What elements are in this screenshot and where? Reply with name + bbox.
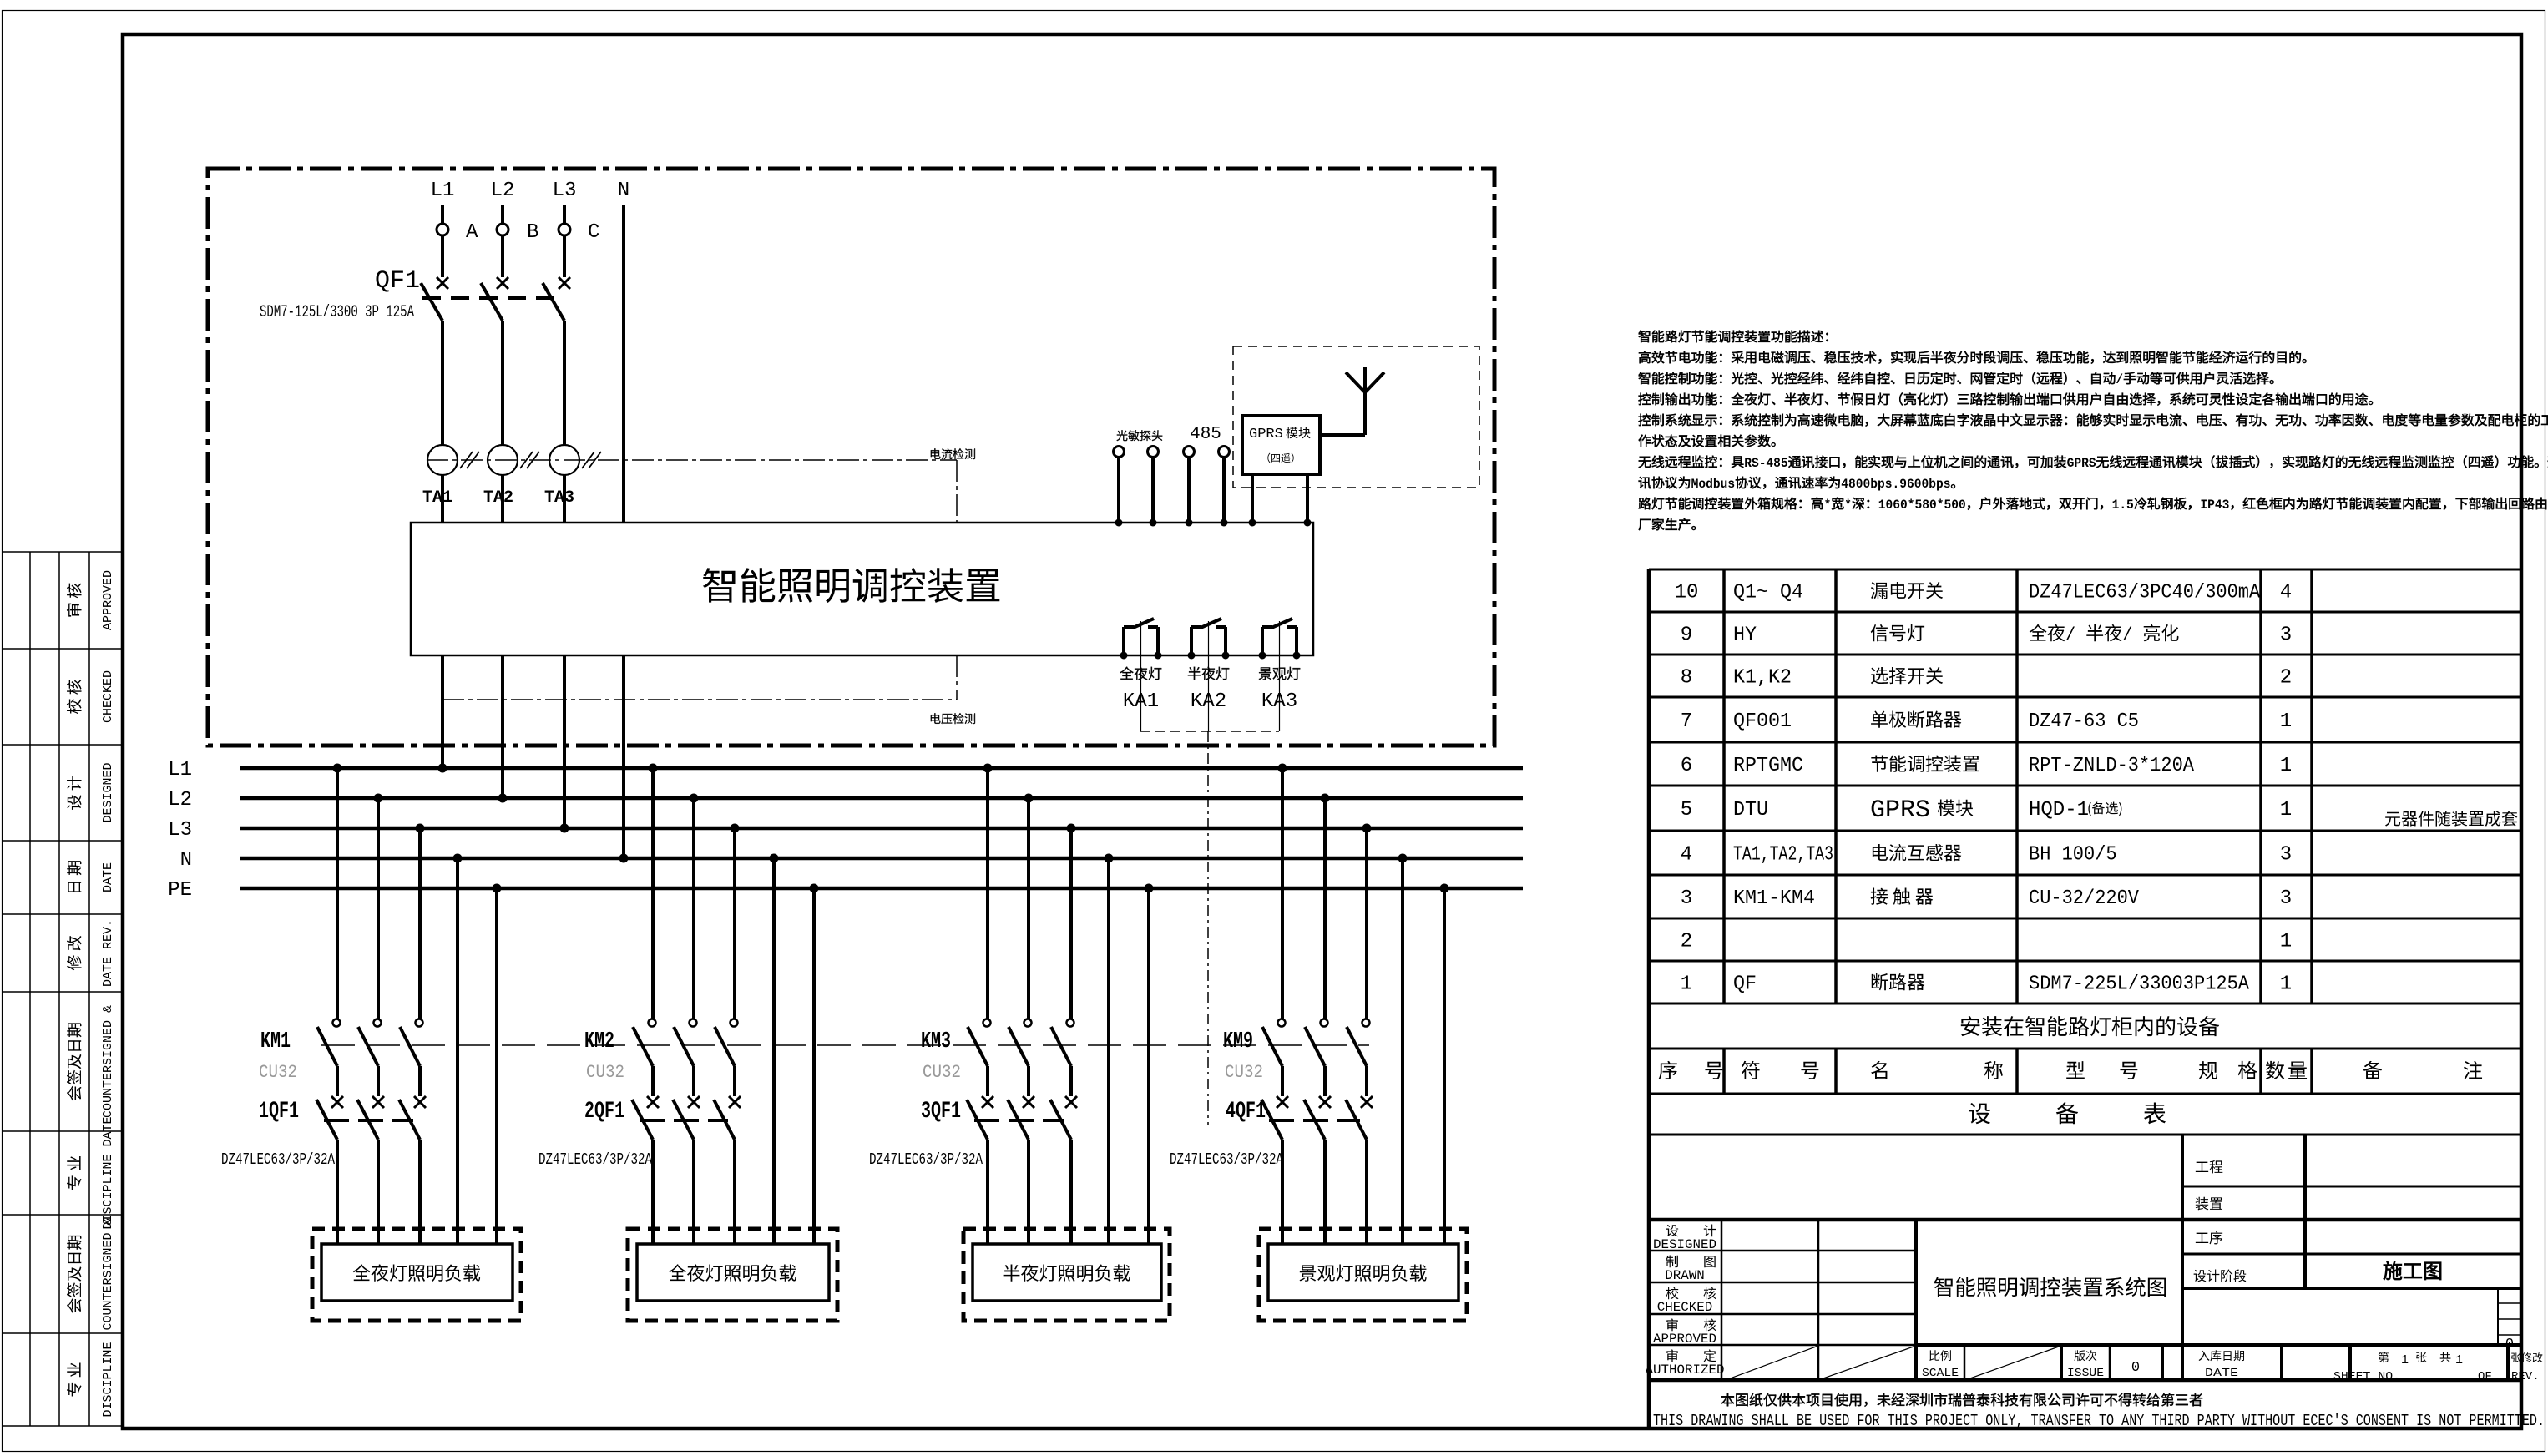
svg-text:1: 1 — [2280, 710, 2292, 733]
svg-text:1060*580*500: 1060*580*500 — [1878, 498, 1966, 513]
svg-text:7: 7 — [1681, 710, 1692, 733]
svg-text:2QF1: 2QF1 — [584, 1099, 624, 1125]
svg-text:4: 4 — [2280, 582, 2292, 604]
svg-text:L1: L1 — [168, 759, 192, 781]
svg-text:RPT-ZNLD-3*120A: RPT-ZNLD-3*120A — [2029, 755, 2195, 777]
svg-text:3: 3 — [2280, 624, 2292, 647]
svg-text:1.5: 1.5 — [2112, 498, 2134, 513]
svg-text:COUNTERSIGNED &: COUNTERSIGNED & — [101, 1217, 115, 1330]
svg-text:DATE: DATE — [2205, 1367, 2238, 1380]
svg-text:1: 1 — [2280, 755, 2292, 777]
svg-text:1: 1 — [2401, 1353, 2409, 1368]
svg-text:DZ47LEC63/3P/32A: DZ47LEC63/3P/32A — [1170, 1150, 1283, 1169]
svg-text:SHEET NO.: SHEET NO. — [2333, 1370, 2400, 1383]
svg-text:/: / — [2122, 625, 2142, 646]
svg-text:9: 9 — [1681, 624, 1692, 647]
svg-text:SDM7-125L/3300 3P 125A: SDM7-125L/3300 3P 125A — [260, 303, 414, 322]
svg-text:TA3: TA3 — [544, 488, 574, 508]
svg-text:KM9: KM9 — [1223, 1029, 1253, 1054]
svg-text:OF: OF — [2478, 1370, 2492, 1383]
svg-text:KA3: KA3 — [1261, 690, 1297, 713]
svg-text:QF: QF — [1733, 973, 1757, 996]
svg-text:3: 3 — [2280, 844, 2292, 867]
svg-text:THIS DRAWING SHALL BE USED FOR: THIS DRAWING SHALL BE USED FOR THIS PROJ… — [1653, 1412, 2545, 1430]
svg-text:N: N — [618, 179, 629, 202]
svg-text:10: 10 — [1675, 582, 1699, 604]
svg-text:HY: HY — [1733, 624, 1757, 647]
svg-text:8: 8 — [1681, 667, 1692, 690]
svg-text:SCALE: SCALE — [1922, 1367, 1959, 1380]
svg-text:L3: L3 — [168, 819, 192, 842]
svg-text:REV.: REV. — [2511, 1370, 2540, 1383]
svg-text:3: 3 — [2280, 887, 2292, 910]
svg-text:DATE: DATE — [101, 862, 115, 892]
svg-text:APPROVED: APPROVED — [1653, 1332, 1716, 1347]
svg-text:CU-32/220V: CU-32/220V — [2029, 887, 2140, 910]
svg-text:CHECKED: CHECKED — [1657, 1300, 1713, 1315]
svg-text:PE: PE — [168, 879, 192, 902]
svg-text:3QF1: 3QF1 — [921, 1099, 961, 1125]
svg-text:KM2: KM2 — [584, 1029, 614, 1054]
svg-text:KA1: KA1 — [1123, 690, 1159, 713]
svg-text:DESIGNED: DESIGNED — [1653, 1237, 1716, 1252]
svg-text:*: * — [1824, 498, 1832, 513]
svg-text:GPRS: GPRS — [2067, 456, 2096, 471]
svg-text:DISCIPLINE DATE: DISCIPLINE DATE — [101, 1116, 115, 1229]
svg-text:6: 6 — [1681, 755, 1692, 777]
svg-text:CU32: CU32 — [586, 1062, 624, 1083]
svg-text:GPRS: GPRS — [1870, 796, 1930, 825]
svg-text:ISSUE: ISSUE — [2067, 1367, 2104, 1380]
svg-text:KM3: KM3 — [921, 1029, 951, 1054]
svg-text:3: 3 — [1681, 887, 1692, 910]
svg-text:Q1~ Q4: Q1~ Q4 — [1733, 582, 1803, 604]
svg-text:A: A — [466, 221, 478, 244]
svg-text:CU32: CU32 — [923, 1062, 961, 1083]
svg-text:1: 1 — [2280, 973, 2292, 996]
svg-text:1: 1 — [2280, 799, 2292, 822]
svg-text:DESIGNED: DESIGNED — [101, 762, 115, 822]
svg-text:4: 4 — [1681, 844, 1692, 867]
svg-text:HQD-1: HQD-1 — [2029, 799, 2089, 822]
svg-text:DZ47-63 C5: DZ47-63 C5 — [2029, 710, 2139, 733]
svg-text:QF001: QF001 — [1733, 710, 1792, 733]
svg-text:CHECKED: CHECKED — [101, 670, 115, 723]
svg-text:QF1: QF1 — [375, 267, 420, 296]
svg-text:TA1: TA1 — [422, 488, 452, 508]
svg-text:485: 485 — [1190, 425, 1221, 444]
svg-text:RS-485: RS-485 — [1744, 456, 1788, 471]
svg-text:BH 100/5: BH 100/5 — [2029, 844, 2117, 867]
svg-text:B: B — [527, 221, 538, 244]
svg-text:DZ47LEC63/3P/32A: DZ47LEC63/3P/32A — [538, 1150, 652, 1169]
svg-text:DTU: DTU — [1733, 799, 1768, 822]
svg-text:1: 1 — [2455, 1353, 2463, 1368]
svg-text:KM1-KM4: KM1-KM4 — [1733, 887, 1815, 910]
svg-text:AUTHORIZED: AUTHORIZED — [1646, 1362, 1725, 1378]
svg-text:RPTGMC: RPTGMC — [1733, 755, 1803, 777]
svg-text:KA2: KA2 — [1191, 690, 1226, 713]
svg-text:DISCIPLINE: DISCIPLINE — [101, 1342, 115, 1417]
svg-text:DATE REV.: DATE REV. — [101, 919, 115, 987]
svg-text:5: 5 — [1681, 799, 1692, 822]
svg-text:DZ47LEC63/3P/32A: DZ47LEC63/3P/32A — [869, 1150, 983, 1169]
svg-text:Modbus: Modbus — [1691, 477, 1736, 492]
svg-text:DRAWN: DRAWN — [1665, 1268, 1705, 1283]
svg-text:4800bps.9600bps: 4800bps.9600bps — [1841, 477, 1950, 492]
svg-text:TA1,TA2,TA3: TA1,TA2,TA3 — [1733, 844, 1833, 867]
svg-text:KM1: KM1 — [260, 1029, 291, 1054]
svg-text:K1,K2: K1,K2 — [1733, 667, 1792, 690]
svg-text:L2: L2 — [168, 789, 192, 811]
svg-text:IP43: IP43 — [2200, 498, 2229, 513]
svg-text:DZ47LEC63/3PC40/300mA: DZ47LEC63/3PC40/300mA — [2029, 582, 2261, 604]
svg-text:/: / — [2116, 372, 2123, 387]
svg-text:1QF1: 1QF1 — [259, 1099, 299, 1125]
svg-text:4QF1: 4QF1 — [1226, 1099, 1266, 1125]
svg-text:L3: L3 — [553, 179, 577, 202]
svg-text:DZ47LEC63/3P/32A: DZ47LEC63/3P/32A — [221, 1150, 335, 1169]
svg-text:N: N — [180, 849, 192, 872]
svg-text:CU32: CU32 — [259, 1062, 297, 1083]
svg-text:C: C — [588, 221, 599, 244]
svg-text:1: 1 — [1681, 973, 1692, 996]
svg-text:APPROVED: APPROVED — [101, 570, 115, 630]
svg-text:*: * — [1844, 498, 1852, 513]
svg-text:/: / — [2065, 625, 2085, 646]
svg-text:L2: L2 — [491, 179, 515, 202]
svg-text:2: 2 — [2280, 667, 2292, 690]
svg-text:0: 0 — [2131, 1360, 2140, 1376]
svg-text:1: 1 — [2280, 931, 2292, 953]
svg-text:SDM7-225L/33003P125A: SDM7-225L/33003P125A — [2029, 973, 2250, 996]
svg-text:2: 2 — [1681, 931, 1692, 953]
svg-text:GPRS: GPRS — [1249, 427, 1283, 442]
svg-text:CU32: CU32 — [1225, 1062, 1263, 1083]
svg-text:COUNTERSIGNED &: COUNTERSIGNED & — [101, 1005, 115, 1118]
svg-text:TA2: TA2 — [483, 488, 513, 508]
svg-text:L1: L1 — [431, 179, 455, 202]
